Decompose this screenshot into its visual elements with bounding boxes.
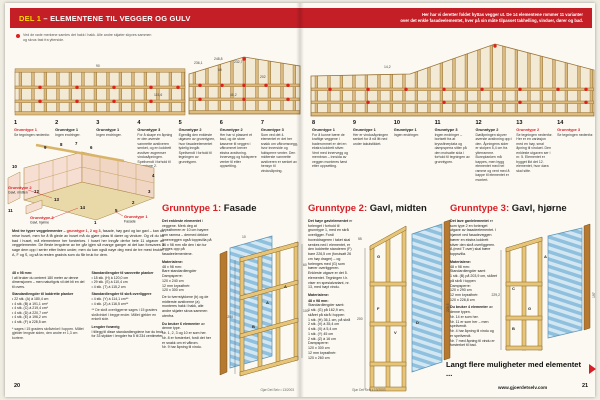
page-title: DEL 1 – ELEMENTENE TIL VEGGER OG GULV bbox=[19, 14, 191, 23]
element-type: Grunntype 3 bbox=[435, 127, 472, 132]
element-type: Grunntype 2 bbox=[475, 127, 512, 132]
page-number-left: 20 bbox=[14, 383, 20, 389]
element-drawing-grunntype3: A C G B 229,2 197 bbox=[496, 218, 598, 360]
element-type: Grunntype 3 bbox=[137, 127, 174, 132]
dimension-label: 200 bbox=[357, 317, 363, 321]
element-type: Grunntype 1 bbox=[394, 127, 431, 132]
element-drawing-grunntype2: G F V D 55 200 226,5 bbox=[356, 212, 452, 398]
element-text: Se tegningen nedenfor. bbox=[14, 133, 51, 137]
element-number: 5 bbox=[179, 120, 216, 126]
house-number: 8 bbox=[60, 142, 63, 147]
dimension-label: 48,2 bbox=[230, 93, 237, 97]
intro-lead: Med tre typer veggelementer – bbox=[12, 229, 67, 233]
element-number: 10 bbox=[394, 120, 431, 126]
g1-body: i veggene. Merk deg at kryssfineren er 1… bbox=[162, 219, 212, 256]
arrow-right-icon bbox=[589, 364, 596, 374]
part-letter: A bbox=[266, 300, 269, 305]
element-type: Grunntype 2 bbox=[179, 127, 216, 132]
element-type: Grunntype 2 bbox=[516, 127, 553, 132]
g3-lead: Det lave gavlelementet bbox=[450, 219, 489, 223]
element-column-9: 9Grunntype 1Her er vindusåpningen senket… bbox=[353, 120, 390, 182]
g3-use-lead: Du bruker 4 elementer bbox=[450, 305, 488, 309]
header-intro-line2: over det enkle fasadeelementet, hver på … bbox=[400, 18, 583, 24]
section-title-red: Grunntype 1: bbox=[162, 203, 221, 214]
cutlist-horiz-items: • 18 stk. (H) à 120,0 cm • 29 stk. (S) à… bbox=[92, 276, 165, 290]
dimension-label: 232,7 bbox=[234, 60, 243, 64]
house-number: 10 bbox=[12, 164, 17, 169]
magazine-spread: DEL 1 – ELEMENTENE TIL VEGGER OG GULV He… bbox=[0, 0, 600, 400]
dimension-label: 236,1 bbox=[194, 61, 203, 65]
element-column-5: 5Grunntype 2Egentlig den enkleste utgave… bbox=[179, 120, 216, 173]
element-number: 7 bbox=[261, 120, 298, 126]
wall-drawing-facade: 90 115,6 bbox=[14, 62, 186, 116]
page-title-rest: – ELEMENTENE TIL VEGGER OG GULV bbox=[41, 14, 190, 23]
element-text: Se tegningen nedenfor. bbox=[557, 133, 594, 137]
element-number: 2 bbox=[55, 120, 92, 126]
house-number: 13 bbox=[54, 197, 59, 202]
g2-materials: 1 stk. (G) på 162,9 cm, skåret på skrå i… bbox=[308, 308, 354, 341]
element-column-7: 7Grunntype 3Som ved det 4. elementet er … bbox=[261, 120, 298, 173]
section-text-grunntype2: Det høye gavlelementet er forlenget i fo… bbox=[308, 219, 354, 360]
page-title-highlight: DEL 1 bbox=[19, 14, 41, 23]
section-text-grunntype1: Det enkleste elementet i veggene. Merk d… bbox=[162, 219, 212, 350]
website-url: www.gjoerdetselv.com bbox=[498, 385, 547, 390]
cutlist-upright-items: • 22 stk. (A) à 180,4 cm • 4 stk. (B) à … bbox=[12, 297, 85, 325]
dimension-label: 197 bbox=[592, 292, 596, 298]
section-title-grunntype3: Grunntype 3: Gavl, hjørne bbox=[450, 203, 567, 214]
element-text: Her er vindusåpningen senket for å nå li… bbox=[353, 133, 390, 146]
g2-lead: Det høye gavlelementet bbox=[308, 219, 348, 223]
element-row-right: 8Grunntype 1For å kunne bære de kraftige… bbox=[312, 120, 594, 182]
dimension-label: 202 bbox=[260, 75, 266, 79]
g2-materials-title: Materialene: bbox=[308, 293, 354, 298]
element-type: Grunntype 3 bbox=[557, 127, 594, 132]
element-column-11: 11Grunntype 3Ingen endringer – bortsett … bbox=[435, 120, 472, 182]
red-marker-icon bbox=[16, 34, 20, 38]
dimension-label: 60 bbox=[218, 68, 222, 72]
element-type: Grunntype 1 bbox=[353, 127, 390, 132]
cutlist-other-body: I tillegg til disse standardlengdene har… bbox=[92, 330, 165, 339]
element-number: 4 bbox=[137, 120, 174, 126]
house-number: 1 bbox=[94, 220, 97, 225]
cutlist-footnote-1: * sages i 15 graders skråvinkel i toppen… bbox=[12, 327, 85, 341]
cutlist: 48 x 98 mm: I alt bruker du omtrent 180 … bbox=[12, 268, 164, 341]
part-letter: G bbox=[528, 306, 531, 311]
g1-use-items: Nr. 1, 2, 3 og 10 er som her. Nr. 8 er f… bbox=[162, 331, 212, 350]
element-number: 13 bbox=[516, 120, 553, 126]
element-number: 3 bbox=[96, 120, 133, 126]
issue-footer-right: Gjør Det Selv • 13/2003 bbox=[352, 388, 386, 392]
dimension-label: 200 bbox=[227, 315, 233, 319]
house-number: 12 bbox=[34, 189, 39, 194]
teaser-text: Langt flere muligheter med elementet ... bbox=[446, 360, 586, 378]
element-text: Her har vi plassert et bad, og de store … bbox=[220, 133, 257, 169]
g3-body: er som type 2 en forlenget utgave av fas… bbox=[450, 219, 496, 256]
house-number: 14 bbox=[80, 205, 85, 210]
g3-use-items: Nr. 14 er som her. Nr. 11 er som her – m… bbox=[450, 315, 497, 348]
element-text: Som ved det 4. elementet er det her snak… bbox=[261, 133, 298, 173]
section-title-grunntype1: Grunntype 1: Fasade bbox=[162, 203, 257, 214]
element-column-8: 8Grunntype 1For å kunne bære de kraftige… bbox=[312, 120, 349, 182]
dimension-label: 248,8 bbox=[214, 57, 223, 61]
house-label-grunntype2-sub: Gavl, midten bbox=[8, 191, 28, 195]
element-text: Ingen endringer. bbox=[55, 133, 92, 137]
dimension-label: 55 bbox=[358, 237, 362, 241]
part-letter: V bbox=[394, 330, 397, 335]
house-label-grunntype1-sub: Fasade bbox=[124, 220, 136, 224]
element-column-14: 14Grunntype 3Se tegningen nedenfor. bbox=[557, 120, 594, 182]
element-text: For å kunne bære de kraftige veggene i b… bbox=[312, 133, 349, 169]
element-column-12: 12Grunntype 2Døråpningen skyver øverste … bbox=[475, 120, 512, 182]
g1-lead: Det enkleste elementet bbox=[162, 219, 201, 223]
element-type: Grunntype 1 bbox=[96, 127, 133, 132]
section-title-red: Grunntype 3: bbox=[450, 203, 509, 214]
part-letter: D bbox=[416, 320, 419, 325]
house-label-grunntype3-sub: Gavl, hjørne bbox=[30, 221, 49, 225]
dimension-label: 14,2 bbox=[384, 65, 391, 69]
part-letter: F bbox=[377, 306, 380, 311]
intro-lead-red: grunntype 1, 2 og 3, bbox=[67, 229, 102, 233]
house-isometric-drawing: 1 2 3 4 5 6 7 8 9 10 11 12 13 14 Grunnty… bbox=[6, 140, 161, 228]
wall-drawing-unfolded: 14,2 bbox=[310, 40, 596, 118]
part-letter: C bbox=[512, 286, 515, 291]
element-type: Grunntype 1 bbox=[312, 127, 349, 132]
element-number: 1 bbox=[14, 120, 51, 126]
page-number-right: 21 bbox=[582, 383, 588, 389]
cutlist-dim-body: I alt bruker du omtrent 180 meter av den… bbox=[12, 276, 85, 290]
house-number: 4 bbox=[152, 173, 155, 178]
part-letter: A bbox=[284, 284, 287, 289]
g3-materials: 48 x 98 mm: Standardlengder samt 1 stk. … bbox=[450, 265, 497, 303]
part-letter: B bbox=[512, 326, 515, 331]
cutlist-column-1: 48 x 98 mm: I alt bruker du omtrent 180 … bbox=[12, 268, 85, 341]
intro-paragraph: Med tre typer veggelementer – grunntype … bbox=[12, 229, 164, 258]
element-column-13: 13Grunntype 2Se tegningen nedenfor. Her … bbox=[516, 120, 553, 182]
cutlist-slant-items: • 4 stk. (Y) à 114,1 cm** • 4 stk. (Z) à… bbox=[92, 297, 165, 306]
dimension-label: 90 bbox=[96, 64, 100, 68]
g2-body: er forlenget i forhold til grunntype 1, … bbox=[308, 219, 352, 289]
g1-materials: 48 x 98 mm: Bare standardlengder Dampspe… bbox=[162, 265, 212, 293]
dimension-label: 10 bbox=[242, 235, 246, 239]
dimension-label: 115,6 bbox=[154, 93, 162, 97]
element-type: Grunntype 2 bbox=[220, 127, 257, 132]
legend-note-text: Ved de røde merkene samles det hakk i ha… bbox=[23, 33, 156, 43]
element-drawing-grunntype1: A B A 200 10 60 100 bbox=[214, 224, 306, 396]
element-text: Døråpningen skyver øverste avstivning op… bbox=[475, 133, 512, 182]
element-column-6: 6Grunntype 2Her har vi plassert et bad, … bbox=[220, 120, 257, 173]
element-text: Se tegningen nedenfor. Her er en variasj… bbox=[516, 133, 553, 173]
g2-materials-2: Dampsperre: 120 x 300 cm 12 mm kryssfiné… bbox=[308, 341, 354, 360]
part-letter: B bbox=[252, 324, 255, 329]
house-number: 7 bbox=[75, 141, 78, 146]
part-letter: G bbox=[377, 254, 380, 259]
cutlist-horiz-title: Standardlengder til vannrette planker bbox=[92, 271, 165, 276]
house-label-grunntype1: Grunntype 1 bbox=[124, 214, 148, 219]
element-text: Ingen endringer – bortsett fra at kryssf… bbox=[435, 133, 472, 164]
element-type: Grunntype 1 bbox=[55, 127, 92, 132]
house-label-grunntype2: Grunntype 2 bbox=[8, 185, 32, 190]
element-number: 8 bbox=[312, 120, 349, 126]
element-text: Ingen endringer. bbox=[96, 133, 133, 137]
section-text-grunntype3: Det lave gavlelementet er som type 2 en … bbox=[450, 219, 497, 348]
element-number: 14 bbox=[557, 120, 594, 126]
element-number: 12 bbox=[475, 120, 512, 126]
section-title-black: Gavl, hjørne bbox=[509, 203, 567, 214]
element-number: 6 bbox=[220, 120, 257, 126]
house-number: 6 bbox=[90, 145, 93, 150]
element-number: 9 bbox=[353, 120, 390, 126]
cutlist-footnote-2: ** De skrå overliggerne sages i 15 grade… bbox=[92, 308, 165, 322]
element-column-10: 10Grunntype 1Ingen endringer. bbox=[394, 120, 431, 182]
element-type: Grunntype 3 bbox=[261, 127, 298, 132]
teaser: Langt flere muligheter med elementet ... bbox=[446, 360, 596, 378]
g1-use-lead: Du bruker 6 elementer bbox=[162, 322, 200, 326]
element-number: 11 bbox=[435, 120, 472, 126]
page-fold bbox=[296, 3, 304, 397]
header-intro: Her har vi deretter foldet hyttas vegger… bbox=[400, 12, 583, 24]
wall-drawing-gable: 236,1 248,8 232,7 60 202 48,2 bbox=[188, 52, 302, 116]
g1-note: De to tverrstykkene (b) og de midterste … bbox=[162, 295, 212, 319]
cutlist-column-2: Standardlengder til vannrette planker • … bbox=[92, 268, 165, 341]
house-number: 11 bbox=[8, 208, 13, 213]
legend-note: Ved de røde merkene samles det hakk i ha… bbox=[16, 33, 156, 43]
issue-footer-left: Gjør Det Selv • 13/2003 bbox=[228, 388, 294, 392]
dimension-label: 229,2 bbox=[492, 293, 501, 297]
house-label-grunntype3: Grunntype 3 bbox=[30, 215, 54, 220]
element-text: Egentlig den enkleste utgaven av grunnty… bbox=[179, 133, 216, 164]
part-letter: A bbox=[544, 254, 547, 259]
section-title-black: Fasade bbox=[221, 203, 256, 214]
element-type: Grunntype 1 bbox=[14, 127, 51, 132]
intro-body: fasade, høy gavl og lav gavl – kan du re… bbox=[12, 229, 164, 257]
element-text: Ingen endringer. bbox=[394, 133, 431, 137]
